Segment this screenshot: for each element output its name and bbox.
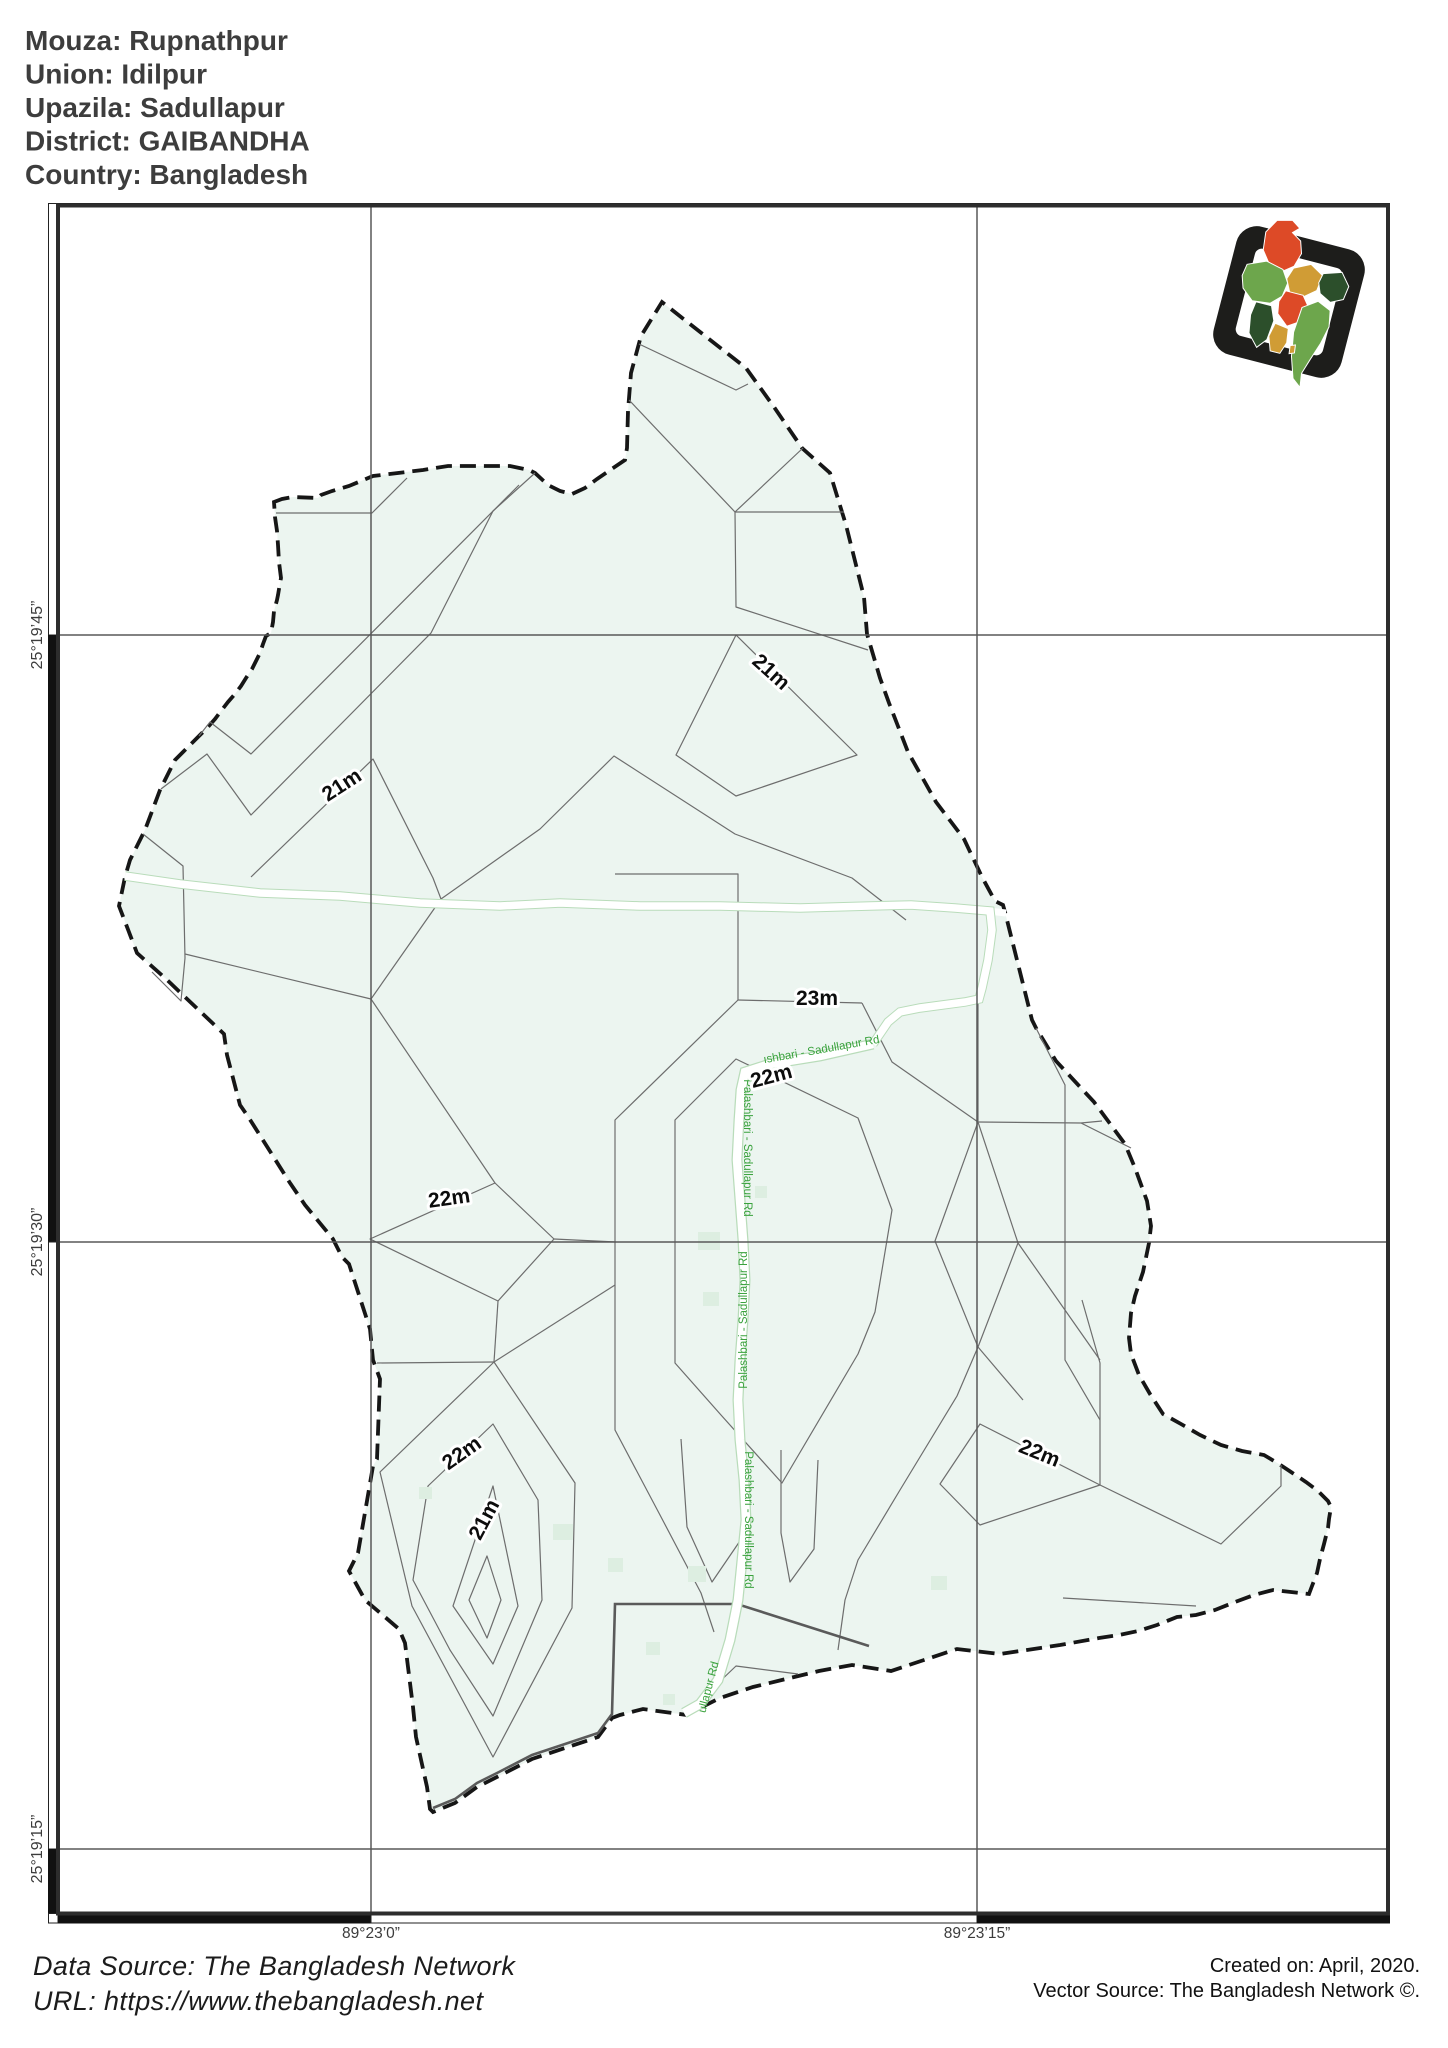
svg-text:District: GAIBANDHA: District: GAIBANDHA — [25, 126, 310, 157]
svg-text:23m: 23m — [796, 987, 838, 1010]
svg-text:Mouza: Rupnathpur: Mouza: Rupnathpur — [25, 25, 288, 56]
svg-text:Union: Idilpur: Union: Idilpur — [25, 59, 207, 90]
svg-text:89°23’15”: 89°23’15” — [944, 1925, 1011, 1942]
svg-text:Upazila: Sadullapur: Upazila: Sadullapur — [25, 92, 285, 123]
svg-text:Palashbari - Sadullapur Rd: Palashbari - Sadullapur Rd — [738, 1251, 750, 1388]
svg-text:89°23’0”: 89°23’0” — [342, 1925, 400, 1942]
svg-text:25°19’30”: 25°19’30” — [29, 1208, 46, 1277]
svg-text:Vector Source: The Bangladesh: Vector Source: The Bangladesh Network ©. — [1033, 1980, 1420, 2002]
svg-text:Palashbari - Sadullapur Rd: Palashbari - Sadullapur Rd — [742, 1451, 754, 1588]
svg-text:URL: https://www.thebangladesh: URL: https://www.thebangladesh.net — [33, 1986, 484, 2016]
svg-text:Created on: April, 2020.: Created on: April, 2020. — [1210, 1955, 1420, 1977]
svg-text:25°19’45”: 25°19’45” — [29, 601, 46, 670]
svg-text:Country: Bangladesh: Country: Bangladesh — [25, 159, 308, 190]
svg-text:25°19’15”: 25°19’15” — [29, 1815, 46, 1884]
svg-text:Data Source: The Bangladesh Ne: Data Source: The Bangladesh Network — [33, 1951, 516, 1981]
svg-text:Palashbari - Sadullapur Rd: Palashbari - Sadullapur Rd — [741, 1079, 753, 1216]
